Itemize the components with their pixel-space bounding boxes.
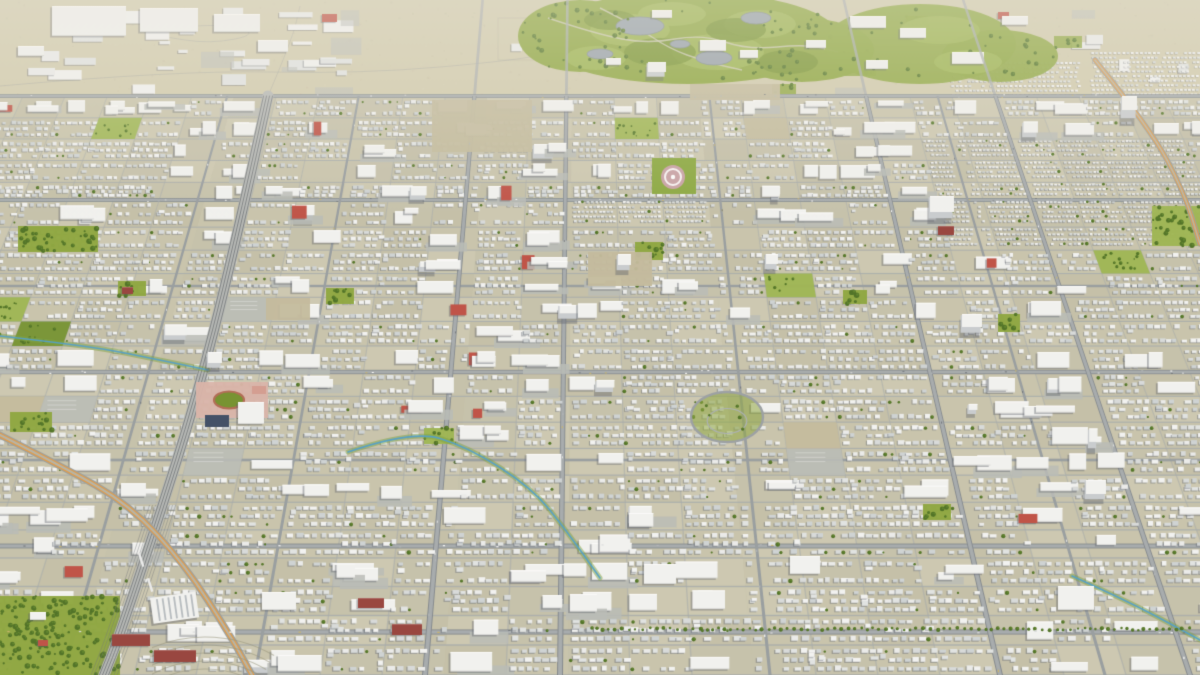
city-3d-aerial-render-canvas bbox=[0, 0, 1200, 675]
city-map-3d-viewport bbox=[0, 0, 1200, 675]
